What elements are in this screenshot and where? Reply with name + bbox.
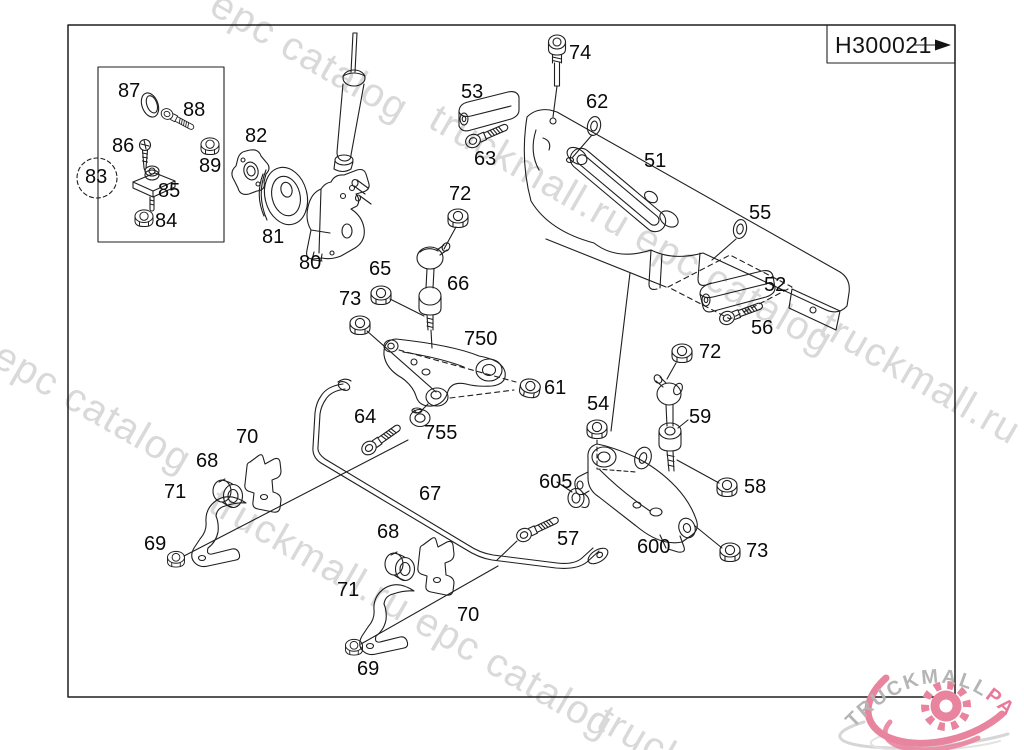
part-callout-85[interactable]: 85 [158, 180, 180, 202]
part-callout-57[interactable]: 57 [557, 528, 579, 550]
part-callout-61[interactable]: 61 [544, 377, 566, 399]
part-callout-72b[interactable]: 72 [699, 341, 721, 363]
part-callout-88[interactable]: 88 [183, 99, 205, 121]
part-callout-51[interactable]: 51 [644, 150, 666, 172]
part-callout-54[interactable]: 54 [587, 393, 609, 415]
part-callout-69b[interactable]: 69 [357, 658, 379, 680]
part-callout-62[interactable]: 62 [586, 91, 608, 113]
part-callout-755[interactable]: 755 [424, 422, 457, 444]
part-callout-73a[interactable]: 73 [339, 288, 361, 310]
part-callout-89[interactable]: 89 [199, 155, 221, 177]
part-callout-72a[interactable]: 72 [449, 183, 471, 205]
part-callout-86[interactable]: 86 [112, 135, 134, 157]
diagram-page: H300021 [0, 0, 1024, 750]
part-callout-71a[interactable]: 71 [164, 481, 186, 503]
part-callout-67[interactable]: 67 [419, 483, 441, 505]
part-callout-66[interactable]: 66 [447, 273, 469, 295]
part-callout-82[interactable]: 82 [245, 125, 267, 147]
part-callout-600[interactable]: 600 [637, 536, 670, 558]
part-callout-69a[interactable]: 69 [144, 533, 166, 555]
part-callout-63[interactable]: 63 [474, 148, 496, 170]
part-callout-56[interactable]: 56 [751, 317, 773, 339]
part-callout-84[interactable]: 84 [155, 210, 177, 232]
part-callout-58[interactable]: 58 [744, 476, 766, 498]
part-callout-53[interactable]: 53 [461, 81, 483, 103]
part-callout-73b[interactable]: 73 [746, 540, 768, 562]
part-callout-55[interactable]: 55 [749, 202, 771, 224]
part-callout-68a[interactable]: 68 [196, 450, 218, 472]
part-callout-74[interactable]: 74 [569, 42, 591, 64]
part-callout-64[interactable]: 64 [354, 406, 376, 428]
part-callout-87[interactable]: 87 [118, 80, 140, 102]
part-callout-80[interactable]: 80 [299, 252, 321, 274]
part-callout-65[interactable]: 65 [369, 258, 391, 280]
part-callout-70a[interactable]: 70 [236, 426, 258, 448]
part-callout-68b[interactable]: 68 [377, 521, 399, 543]
part-callout-605[interactable]: 605 [539, 471, 572, 493]
part-callout-81[interactable]: 81 [262, 226, 284, 248]
part-labels-layer: 7453626351555256728788828689838584818072… [0, 0, 1024, 750]
part-callout-750[interactable]: 750 [464, 328, 497, 350]
part-callout-59[interactable]: 59 [689, 406, 711, 428]
part-callout-70b[interactable]: 70 [457, 604, 479, 626]
part-callout-83[interactable]: 83 [85, 166, 107, 188]
part-callout-52[interactable]: 52 [764, 274, 786, 296]
part-callout-71b[interactable]: 71 [337, 579, 359, 601]
